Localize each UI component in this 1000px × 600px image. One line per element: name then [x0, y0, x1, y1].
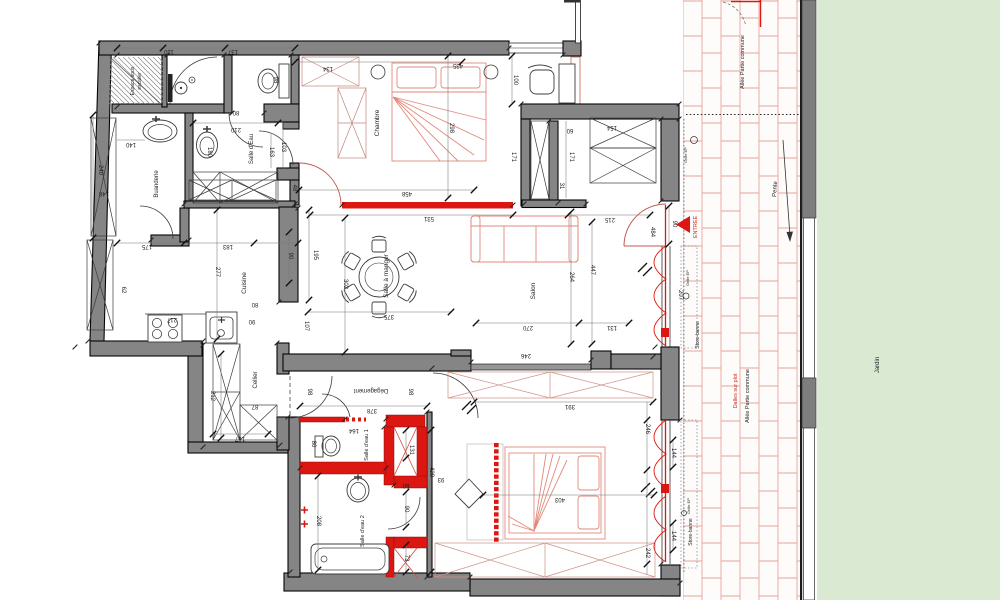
svg-text:110: 110 [164, 48, 174, 54]
svg-text:Jardin: Jardin [875, 357, 881, 373]
svg-text:73: 73 [403, 555, 409, 562]
svg-text:131: 131 [606, 324, 617, 330]
svg-text:98: 98 [272, 77, 278, 84]
svg-text:215: 215 [604, 216, 615, 222]
svg-text:270: 270 [522, 324, 533, 330]
svg-text:90: 90 [287, 253, 293, 260]
svg-text:98: 98 [407, 389, 413, 396]
svg-text:264: 264 [568, 272, 574, 283]
svg-text:391: 391 [564, 403, 575, 409]
svg-text:447: 447 [589, 265, 595, 276]
svg-text:Salle d'eau 1: Salle d'eau 1 [364, 429, 370, 461]
svg-text:Salle à manger: Salle à manger [383, 253, 390, 298]
svg-text:87: 87 [251, 403, 258, 409]
svg-text:458: 458 [401, 190, 412, 196]
svg-text:217: 217 [166, 316, 177, 322]
svg-text:Store-banne: Store-banne [695, 321, 701, 349]
svg-text:435: 435 [452, 62, 463, 68]
svg-text:Cellier: Cellier [253, 371, 259, 388]
svg-text:100: 100 [512, 75, 518, 86]
svg-text:Salle d'eau 2: Salle d'eau 2 [360, 515, 366, 547]
svg-text:ENTREE: ENTREE [693, 216, 699, 239]
svg-text:210: 210 [230, 126, 241, 132]
svg-text:62: 62 [120, 287, 126, 294]
svg-text:240: 240 [97, 165, 103, 176]
svg-text:Grille EP: Grille EP [686, 498, 691, 514]
svg-text:Espace sous: Espace sous [130, 66, 136, 95]
svg-text:207: 207 [677, 290, 683, 301]
svg-text:428: 428 [428, 467, 434, 478]
svg-text:246: 246 [520, 352, 531, 358]
svg-text:Store-banne: Store-banne [688, 518, 694, 546]
svg-text:escalier: escalier [137, 72, 143, 90]
svg-text:242: 242 [644, 548, 650, 559]
svg-text:107: 107 [303, 321, 309, 332]
svg-text:Cuisine: Cuisine [241, 272, 248, 294]
svg-text:48: 48 [291, 185, 297, 192]
svg-text:131: 131 [408, 445, 414, 456]
svg-text:163: 163 [268, 147, 274, 158]
svg-text:277: 277 [214, 267, 220, 278]
svg-text:80: 80 [310, 441, 316, 448]
svg-text:93: 93 [437, 476, 444, 482]
svg-text:Allée Partie commune: Allée Partie commune [740, 35, 746, 89]
svg-text:Salle d'Eau: Salle d'Eau [249, 134, 255, 164]
svg-text:90: 90 [403, 506, 409, 513]
svg-text:Grille EP: Grille EP [683, 147, 688, 163]
svg-text:378: 378 [366, 407, 377, 413]
svg-text:98: 98 [306, 389, 312, 396]
svg-text:154: 154 [606, 124, 617, 130]
svg-text:60: 60 [402, 482, 409, 488]
svg-text:484: 484 [649, 227, 655, 238]
svg-text:167: 167 [234, 435, 245, 441]
svg-text:175: 175 [141, 243, 152, 249]
svg-text:212: 212 [209, 391, 215, 402]
svg-text:Dégagement: Dégagement [353, 387, 388, 393]
svg-text:144: 144 [670, 448, 676, 459]
svg-text:90: 90 [671, 221, 677, 228]
svg-text:302: 302 [342, 279, 348, 290]
svg-text:180: 180 [206, 147, 212, 158]
svg-text:531: 531 [423, 215, 434, 221]
svg-text:Pente: Pente [772, 180, 779, 197]
svg-text:80: 80 [251, 301, 258, 307]
svg-text:148: 148 [98, 190, 109, 196]
svg-text:Grille EP: Grille EP [685, 270, 690, 286]
svg-text:Buanderie: Buanderie [154, 170, 160, 198]
svg-text:403: 403 [554, 496, 565, 502]
svg-text:298: 298 [448, 123, 454, 134]
svg-text:164: 164 [348, 427, 359, 433]
svg-text:103: 103 [280, 142, 286, 153]
svg-text:80: 80 [232, 109, 239, 115]
svg-text:171: 171 [510, 152, 516, 163]
svg-text:195: 195 [312, 250, 318, 261]
svg-text:31: 31 [558, 183, 564, 190]
svg-text:140: 140 [125, 141, 136, 147]
svg-text:Allée Partie commune: Allée Partie commune [745, 369, 751, 423]
svg-text:144: 144 [670, 531, 676, 542]
svg-text:Dalles sur plot: Dalles sur plot [733, 373, 739, 408]
svg-text:183: 183 [222, 243, 233, 249]
svg-text:60: 60 [566, 127, 573, 133]
svg-text:375: 375 [383, 313, 394, 319]
svg-text:Salon: Salon [530, 282, 537, 299]
svg-text:90: 90 [248, 318, 255, 324]
svg-text:Chambre: Chambre [374, 109, 381, 136]
svg-text:137: 137 [227, 48, 238, 54]
svg-text:134: 134 [322, 65, 333, 71]
svg-text:171: 171 [568, 152, 574, 163]
svg-text:246: 246 [644, 424, 650, 435]
svg-text:208: 208 [315, 516, 321, 527]
